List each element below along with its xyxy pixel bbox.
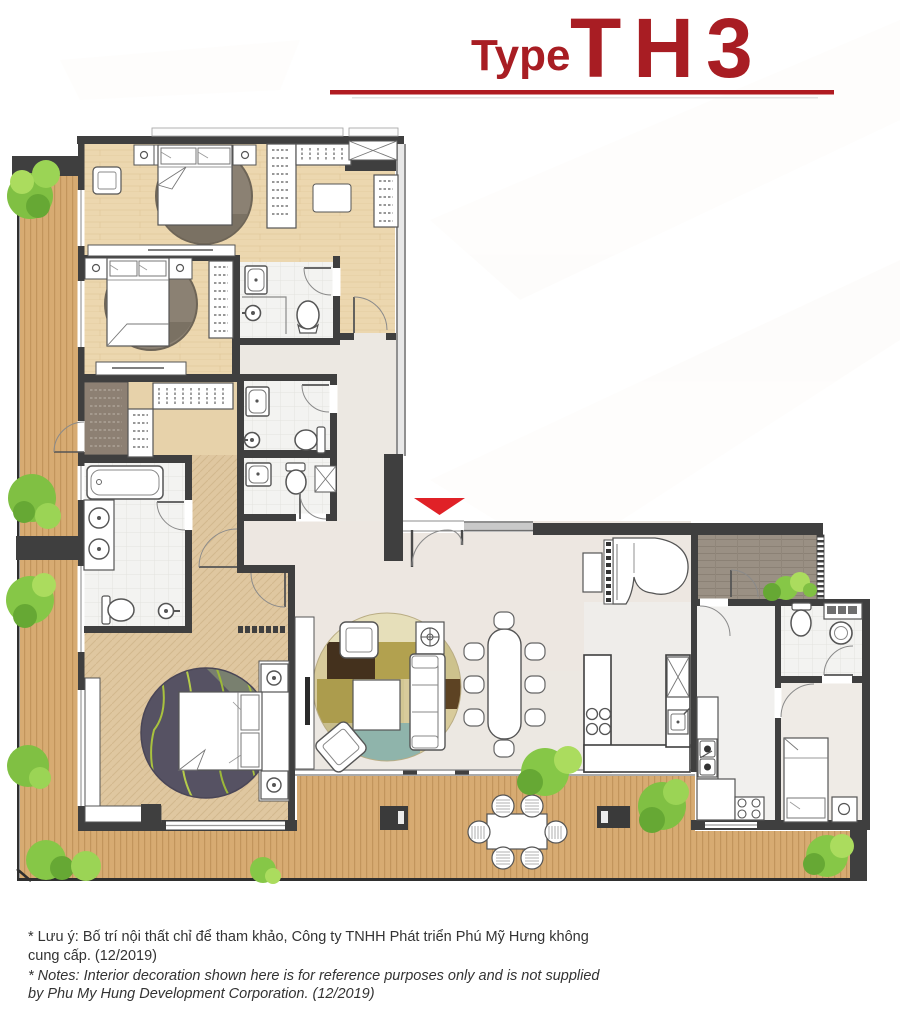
svg-text:TH3: TH3 — [570, 1, 765, 95]
svg-text:Type: Type — [471, 31, 570, 80]
svg-text:* Notes: Interior decoration s: * Notes: Interior decoration shown here … — [28, 968, 600, 984]
svg-text:* Lưu ý: Bố trí nội thất chỉ đ: * Lưu ý: Bố trí nội thất chỉ để tham khả… — [28, 929, 589, 945]
svg-text:cung cấp. (12/2019): cung cấp. (12/2019) — [28, 948, 157, 964]
svg-text:by Phu My Hung Development Cor: by Phu My Hung Development Corporation. … — [28, 986, 375, 1002]
